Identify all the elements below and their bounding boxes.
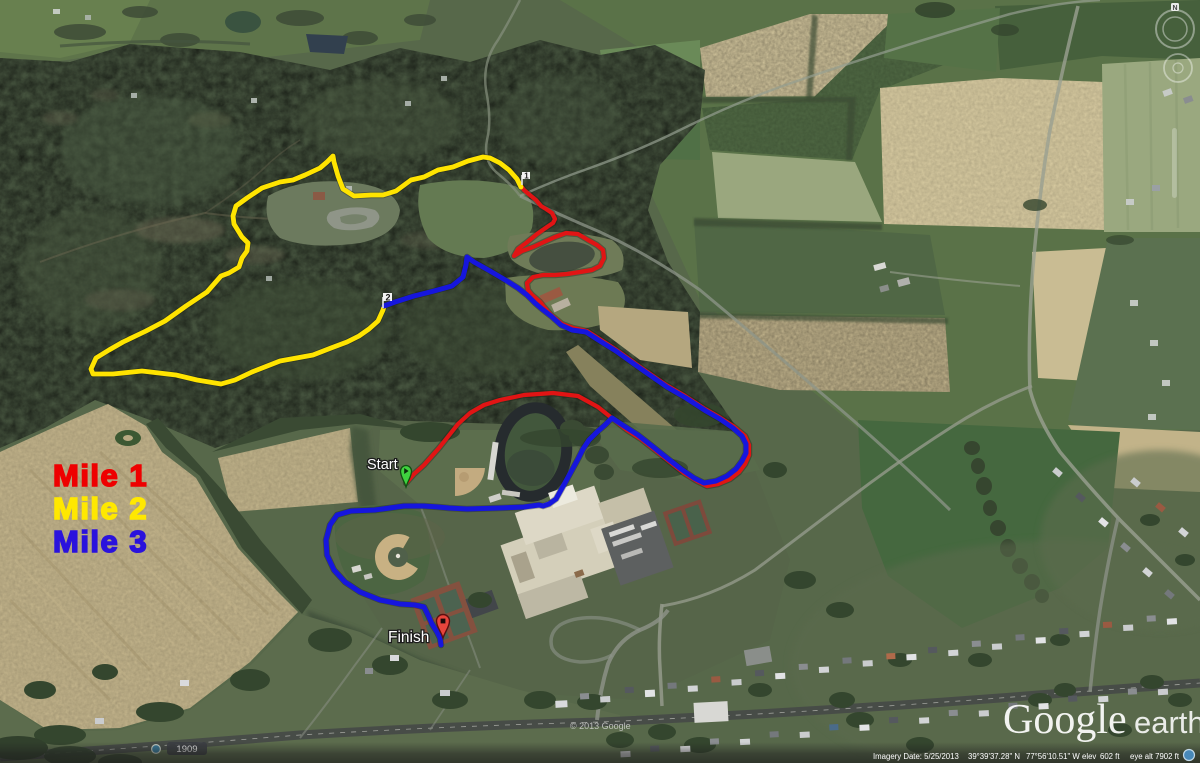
svg-text:39°39'37.28" N: 39°39'37.28" N [968, 752, 1020, 761]
svg-text:Google: Google [1003, 697, 1127, 743]
svg-text:Finish: Finish [388, 629, 429, 646]
svg-text:N: N [1172, 5, 1177, 12]
svg-text:Mile 1: Mile 1 [53, 458, 148, 493]
svg-text:77°56'10.51" W: 77°56'10.51" W [1026, 752, 1080, 761]
svg-text:Mile 2: Mile 2 [53, 491, 148, 526]
svg-text:2: 2 [385, 293, 390, 303]
svg-text:Imagery Date: 5/25/2013: Imagery Date: 5/25/2013 [873, 752, 959, 761]
svg-text:Mile 3: Mile 3 [53, 524, 148, 559]
svg-text:602 ft: 602 ft [1100, 752, 1120, 761]
svg-text:earth: earth [1134, 705, 1200, 740]
svg-text:Start: Start [367, 457, 398, 473]
svg-text:© 2013 Google: © 2013 Google [570, 721, 631, 731]
svg-text:elev: elev [1082, 752, 1096, 761]
svg-text:1: 1 [524, 172, 529, 181]
svg-text:eye alt 7902 ft: eye alt 7902 ft [1130, 752, 1180, 761]
